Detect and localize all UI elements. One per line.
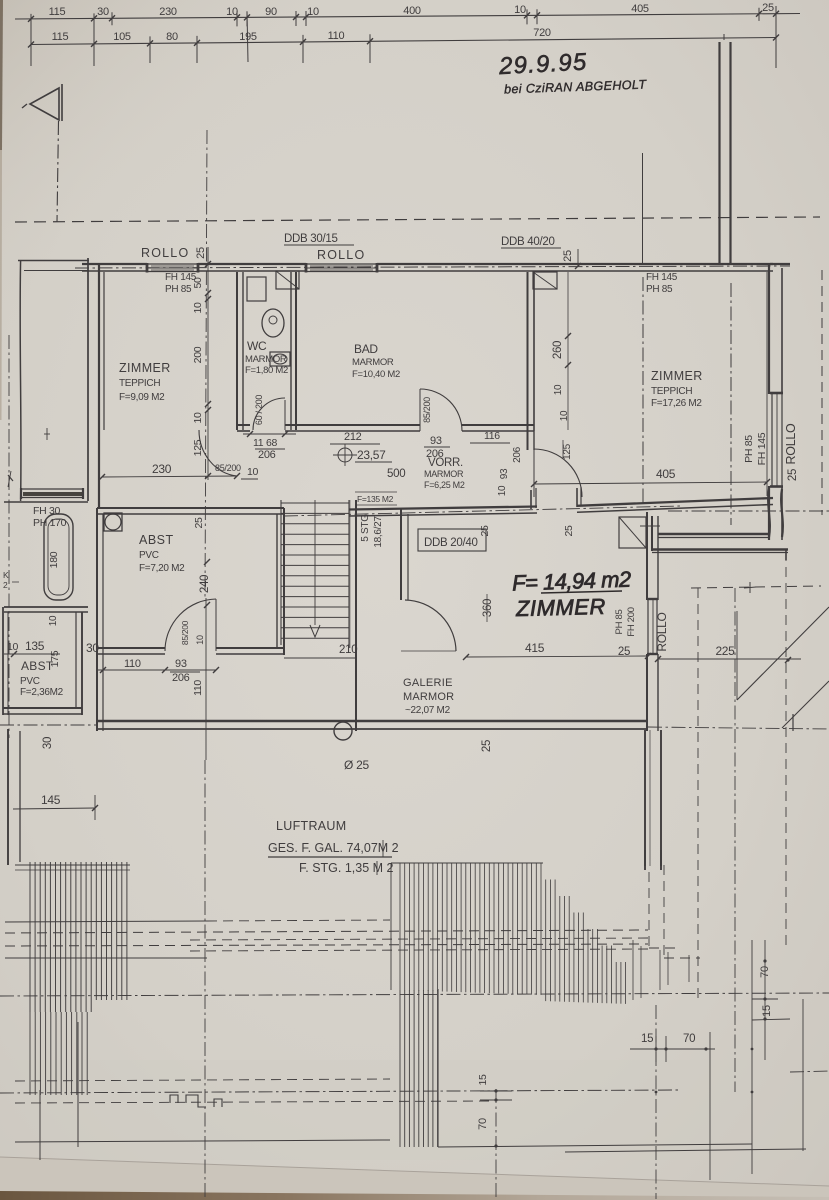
- svg-text:11: 11: [253, 437, 264, 449]
- svg-text:25: 25: [479, 525, 491, 537]
- svg-text:405: 405: [631, 3, 649, 15]
- svg-text:~22,07 M2: ~22,07 M2: [405, 705, 451, 716]
- svg-text:TEPPICH: TEPPICH: [119, 378, 160, 389]
- svg-text:K: K: [3, 570, 9, 580]
- svg-text:ROLLO: ROLLO: [784, 423, 798, 464]
- svg-text:PH 85: PH 85: [646, 284, 673, 295]
- svg-text:105: 105: [113, 31, 131, 43]
- svg-text:720: 720: [533, 27, 551, 39]
- svg-text:F=9,09 M2: F=9,09 M2: [119, 392, 165, 403]
- svg-text:F=17,26 M2: F=17,26 M2: [651, 398, 702, 409]
- svg-text:ZIMMER: ZIMMER: [651, 369, 703, 383]
- svg-text:ROLLO: ROLLO: [317, 248, 365, 262]
- svg-text:VORR.: VORR.: [428, 457, 463, 469]
- svg-text:F=10,40 M2: F=10,40 M2: [352, 369, 400, 380]
- svg-text:ZIMMER: ZIMMER: [515, 594, 606, 621]
- svg-text:145: 145: [41, 793, 61, 807]
- svg-text:GES. F. GAL. 74,07M 2: GES. F. GAL. 74,07M 2: [268, 841, 399, 855]
- svg-text:FH 145: FH 145: [646, 272, 678, 283]
- svg-text:DDB 40/20: DDB 40/20: [501, 236, 555, 248]
- svg-text:25: 25: [762, 2, 774, 14]
- svg-text:360: 360: [482, 599, 494, 617]
- svg-text:175: 175: [49, 650, 61, 667]
- svg-text:BAD: BAD: [354, 342, 378, 356]
- svg-text:110: 110: [328, 30, 345, 42]
- svg-text:230: 230: [159, 6, 177, 18]
- svg-text:206: 206: [172, 672, 190, 684]
- svg-text:F=6,25 M2: F=6,25 M2: [424, 480, 465, 490]
- svg-text:ZIMMER: ZIMMER: [119, 361, 171, 375]
- svg-text:FH 30: FH 30: [33, 505, 61, 517]
- svg-text:PH 85: PH 85: [165, 284, 192, 295]
- svg-text:F. STG. 1,35 M 2: F. STG. 1,35 M 2: [299, 861, 394, 875]
- svg-text:25: 25: [562, 250, 574, 262]
- svg-text:25: 25: [787, 469, 799, 481]
- svg-text:F=1,80 M2: F=1,80 M2: [245, 365, 288, 376]
- svg-text:10: 10: [307, 6, 319, 18]
- svg-text:30: 30: [97, 6, 109, 18]
- svg-text:Ø 25: Ø 25: [344, 758, 369, 772]
- svg-text:TEPPICH: TEPPICH: [651, 386, 692, 397]
- svg-text:30: 30: [42, 737, 54, 749]
- svg-text:70: 70: [683, 1033, 695, 1045]
- svg-text:206: 206: [258, 449, 276, 461]
- svg-text:PH 85: PH 85: [614, 610, 625, 635]
- svg-text:GALERIE: GALERIE: [403, 677, 453, 689]
- svg-text:93: 93: [499, 468, 510, 479]
- svg-text:85/200: 85/200: [215, 463, 241, 473]
- svg-text:PVC: PVC: [20, 676, 40, 687]
- svg-text:DDB 30/15: DDB 30/15: [284, 233, 338, 245]
- svg-text:15: 15: [641, 1033, 653, 1045]
- svg-text:125: 125: [562, 443, 573, 460]
- svg-text:25: 25: [481, 740, 493, 752]
- svg-text:MARMOR: MARMOR: [245, 354, 287, 365]
- svg-text:F=2,36M2: F=2,36M2: [20, 687, 64, 698]
- svg-text:405: 405: [656, 467, 676, 481]
- svg-text:15: 15: [761, 1005, 773, 1017]
- svg-text:10: 10: [48, 615, 59, 626]
- svg-text:110: 110: [192, 680, 204, 696]
- svg-text:MARMOR: MARMOR: [403, 691, 454, 703]
- svg-text:ROLLO: ROLLO: [655, 612, 669, 651]
- svg-text:206: 206: [512, 446, 523, 463]
- svg-text:10: 10: [553, 384, 564, 395]
- svg-text:68: 68: [266, 437, 278, 449]
- svg-text:10: 10: [247, 466, 259, 478]
- svg-text:MARMOR: MARMOR: [424, 469, 464, 479]
- svg-text:93: 93: [430, 435, 442, 447]
- svg-text:18,6/27: 18,6/27: [373, 516, 384, 548]
- svg-text:PVC: PVC: [139, 550, 159, 561]
- svg-text:2: 2: [3, 580, 8, 590]
- svg-text:30: 30: [86, 641, 99, 655]
- svg-text:F=135 M2: F=135 M2: [357, 494, 394, 504]
- svg-text:400: 400: [403, 5, 421, 17]
- svg-text:500: 500: [387, 468, 405, 480]
- svg-text:25: 25: [563, 525, 575, 537]
- svg-text:80: 80: [166, 31, 178, 43]
- svg-text:10: 10: [514, 4, 526, 16]
- svg-text:FH 145: FH 145: [756, 432, 768, 465]
- svg-text:240: 240: [199, 575, 211, 593]
- svg-text:415: 415: [525, 641, 545, 655]
- svg-text:ROLLO: ROLLO: [141, 246, 189, 260]
- svg-text:93: 93: [175, 658, 187, 670]
- svg-text:110: 110: [124, 658, 141, 670]
- svg-text:23,57: 23,57: [357, 448, 386, 462]
- svg-text:115: 115: [52, 31, 69, 43]
- svg-text:135: 135: [25, 639, 45, 653]
- svg-text:10: 10: [195, 635, 205, 645]
- svg-text:DDB 20/40: DDB 20/40: [424, 537, 478, 549]
- svg-text:ABST: ABST: [139, 533, 174, 547]
- svg-text:LUFTRAUM: LUFTRAUM: [276, 819, 346, 833]
- svg-text:225: 225: [715, 644, 735, 658]
- svg-text:MARMOR: MARMOR: [352, 357, 394, 368]
- svg-text:115: 115: [49, 6, 66, 18]
- svg-text:210: 210: [339, 644, 357, 656]
- svg-text:10: 10: [192, 302, 204, 314]
- svg-text:50: 50: [192, 277, 204, 289]
- svg-text:212: 212: [344, 431, 362, 443]
- svg-text:5 STG: 5 STG: [360, 514, 371, 542]
- svg-text:90: 90: [265, 6, 277, 18]
- svg-text:25: 25: [193, 517, 205, 529]
- svg-text:60 / 200: 60 / 200: [254, 395, 264, 425]
- svg-text:116: 116: [484, 430, 500, 442]
- svg-text:10: 10: [497, 485, 508, 496]
- svg-text:WC: WC: [247, 339, 267, 353]
- svg-text:29.9.95: 29.9.95: [497, 49, 588, 81]
- svg-text:15: 15: [477, 1074, 489, 1086]
- svg-text:85/200: 85/200: [422, 397, 432, 423]
- svg-text:195: 195: [239, 31, 257, 43]
- svg-text:70: 70: [477, 1118, 489, 1130]
- svg-text:260: 260: [552, 341, 564, 359]
- svg-text:25: 25: [195, 247, 207, 259]
- svg-text:85/200: 85/200: [180, 620, 190, 645]
- svg-text:10: 10: [192, 412, 204, 424]
- svg-text:230: 230: [152, 462, 172, 476]
- svg-text:180: 180: [48, 551, 60, 568]
- svg-text:200: 200: [192, 346, 204, 363]
- svg-text:10: 10: [226, 6, 238, 18]
- svg-text:PH 85: PH 85: [743, 435, 755, 463]
- svg-text:FH 200: FH 200: [626, 607, 637, 636]
- svg-text:F=7,20 M2: F=7,20 M2: [139, 563, 185, 574]
